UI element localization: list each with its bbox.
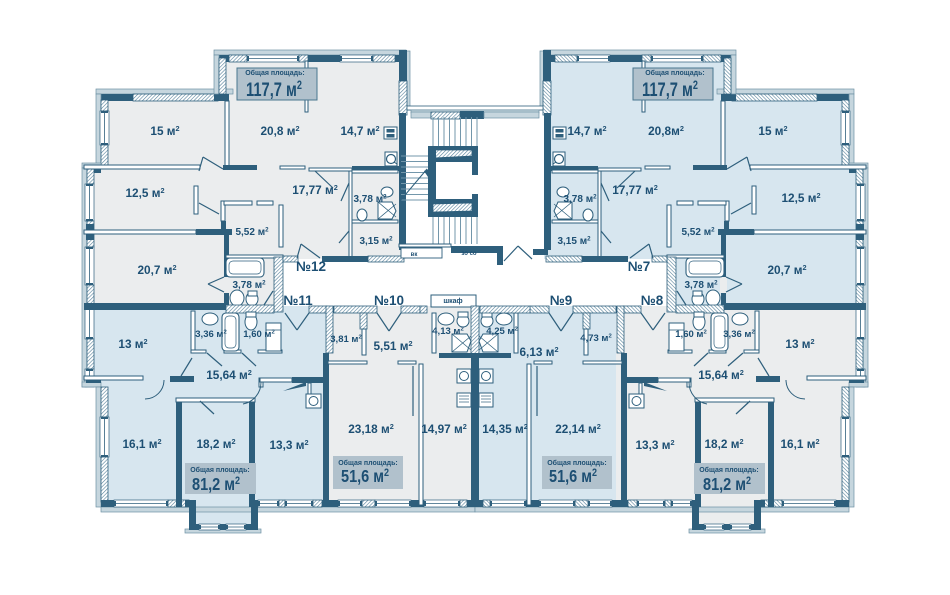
svg-text:Общая площадь:: Общая площадь:	[190, 466, 250, 474]
svg-text:3,78 м2: 3,78 м2	[563, 194, 597, 206]
svg-text:51,6 м2: 51,6 м2	[549, 466, 597, 486]
svg-text:4,13 м2: 4,13 м2	[432, 326, 464, 337]
svg-text:№7: №7	[628, 259, 651, 274]
svg-text:зо со: зо со	[461, 251, 477, 257]
svg-text:15,64 м2: 15,64 м2	[698, 368, 744, 382]
svg-text:6,13 м2: 6,13 м2	[519, 345, 558, 359]
svg-text:13,3 м2: 13,3 м2	[269, 438, 308, 452]
svg-text:13 м2: 13 м2	[785, 337, 814, 351]
svg-text:№9: №9	[550, 293, 573, 308]
svg-text:№10: №10	[374, 293, 404, 308]
svg-text:16,1 м2: 16,1 м2	[780, 437, 819, 451]
svg-text:16,1 м2: 16,1 м2	[122, 437, 161, 451]
svg-text:3,15 м2: 3,15 м2	[557, 236, 591, 248]
svg-text:№8: №8	[641, 293, 664, 308]
svg-text:№11: №11	[283, 293, 313, 308]
svg-text:3,15 м2: 3,15 м2	[359, 236, 393, 248]
svg-text:117,7 м2: 117,7 м2	[642, 78, 698, 101]
svg-text:12,5 м2: 12,5 м2	[125, 186, 164, 200]
svg-text:1,60 м2: 1,60 м2	[675, 329, 707, 340]
svg-text:13 м2: 13 м2	[118, 337, 147, 351]
svg-text:3,36 м2: 3,36 м2	[723, 329, 755, 340]
svg-text:3,78 м2: 3,78 м2	[684, 280, 718, 292]
svg-text:№12: №12	[296, 259, 326, 274]
svg-text:3,36 м2: 3,36 м2	[195, 329, 227, 340]
svg-text:1,60 м2: 1,60 м2	[243, 329, 275, 340]
svg-text:5,51 м2: 5,51 м2	[373, 339, 412, 353]
svg-text:3,78 м2: 3,78 м2	[353, 194, 387, 206]
svg-text:14,97 м2: 14,97 м2	[421, 422, 467, 436]
svg-text:81,2 м2: 81,2 м2	[703, 474, 751, 494]
svg-text:20,8м2: 20,8м2	[648, 124, 684, 138]
svg-text:13,3 м2: 13,3 м2	[635, 438, 674, 452]
svg-text:17,77 м2: 17,77 м2	[612, 183, 658, 197]
svg-text:20,8 м2: 20,8 м2	[260, 124, 299, 138]
svg-text:4,25 м2: 4,25 м2	[486, 326, 518, 337]
svg-text:12,5 м2: 12,5 м2	[781, 191, 820, 205]
svg-text:5,52 м2: 5,52 м2	[681, 227, 715, 239]
svg-text:51,6 м2: 51,6 м2	[341, 466, 389, 486]
svg-text:3,81 м2: 3,81 м2	[330, 334, 362, 345]
svg-text:15,64 м2: 15,64 м2	[206, 368, 252, 382]
svg-text:Общая площадь:: Общая площадь:	[645, 69, 705, 77]
svg-text:22,14 м2: 22,14 м2	[555, 422, 601, 436]
svg-text:5,52 м2: 5,52 м2	[235, 227, 269, 239]
svg-text:23,18 м2: 23,18 м2	[348, 422, 394, 436]
svg-text:20,7 м2: 20,7 м2	[767, 263, 806, 277]
svg-text:81,2 м2: 81,2 м2	[192, 474, 240, 494]
svg-text:шкаф: шкаф	[443, 298, 462, 305]
svg-text:вк: вк	[411, 252, 418, 258]
svg-text:117,7 м2: 117,7 м2	[246, 78, 302, 101]
svg-text:Общая площадь:: Общая площадь:	[699, 466, 759, 474]
svg-text:4,73 м2: 4,73 м2	[580, 333, 612, 344]
svg-text:15 м2: 15 м2	[758, 124, 787, 138]
svg-text:17,77 м2: 17,77 м2	[292, 183, 338, 197]
svg-text:Общая площадь:: Общая площадь:	[245, 69, 305, 77]
svg-text:18,2 м2: 18,2 м2	[196, 437, 235, 451]
svg-text:15 м2: 15 м2	[150, 124, 179, 138]
svg-text:3,78 м2: 3,78 м2	[232, 280, 266, 292]
svg-text:14,7 м2: 14,7 м2	[340, 124, 379, 138]
svg-text:14,7 м2: 14,7 м2	[567, 124, 606, 138]
svg-text:20,7 м2: 20,7 м2	[137, 263, 176, 277]
svg-text:14,35 м2: 14,35 м2	[482, 422, 528, 436]
svg-text:18,2 м2: 18,2 м2	[704, 437, 743, 451]
